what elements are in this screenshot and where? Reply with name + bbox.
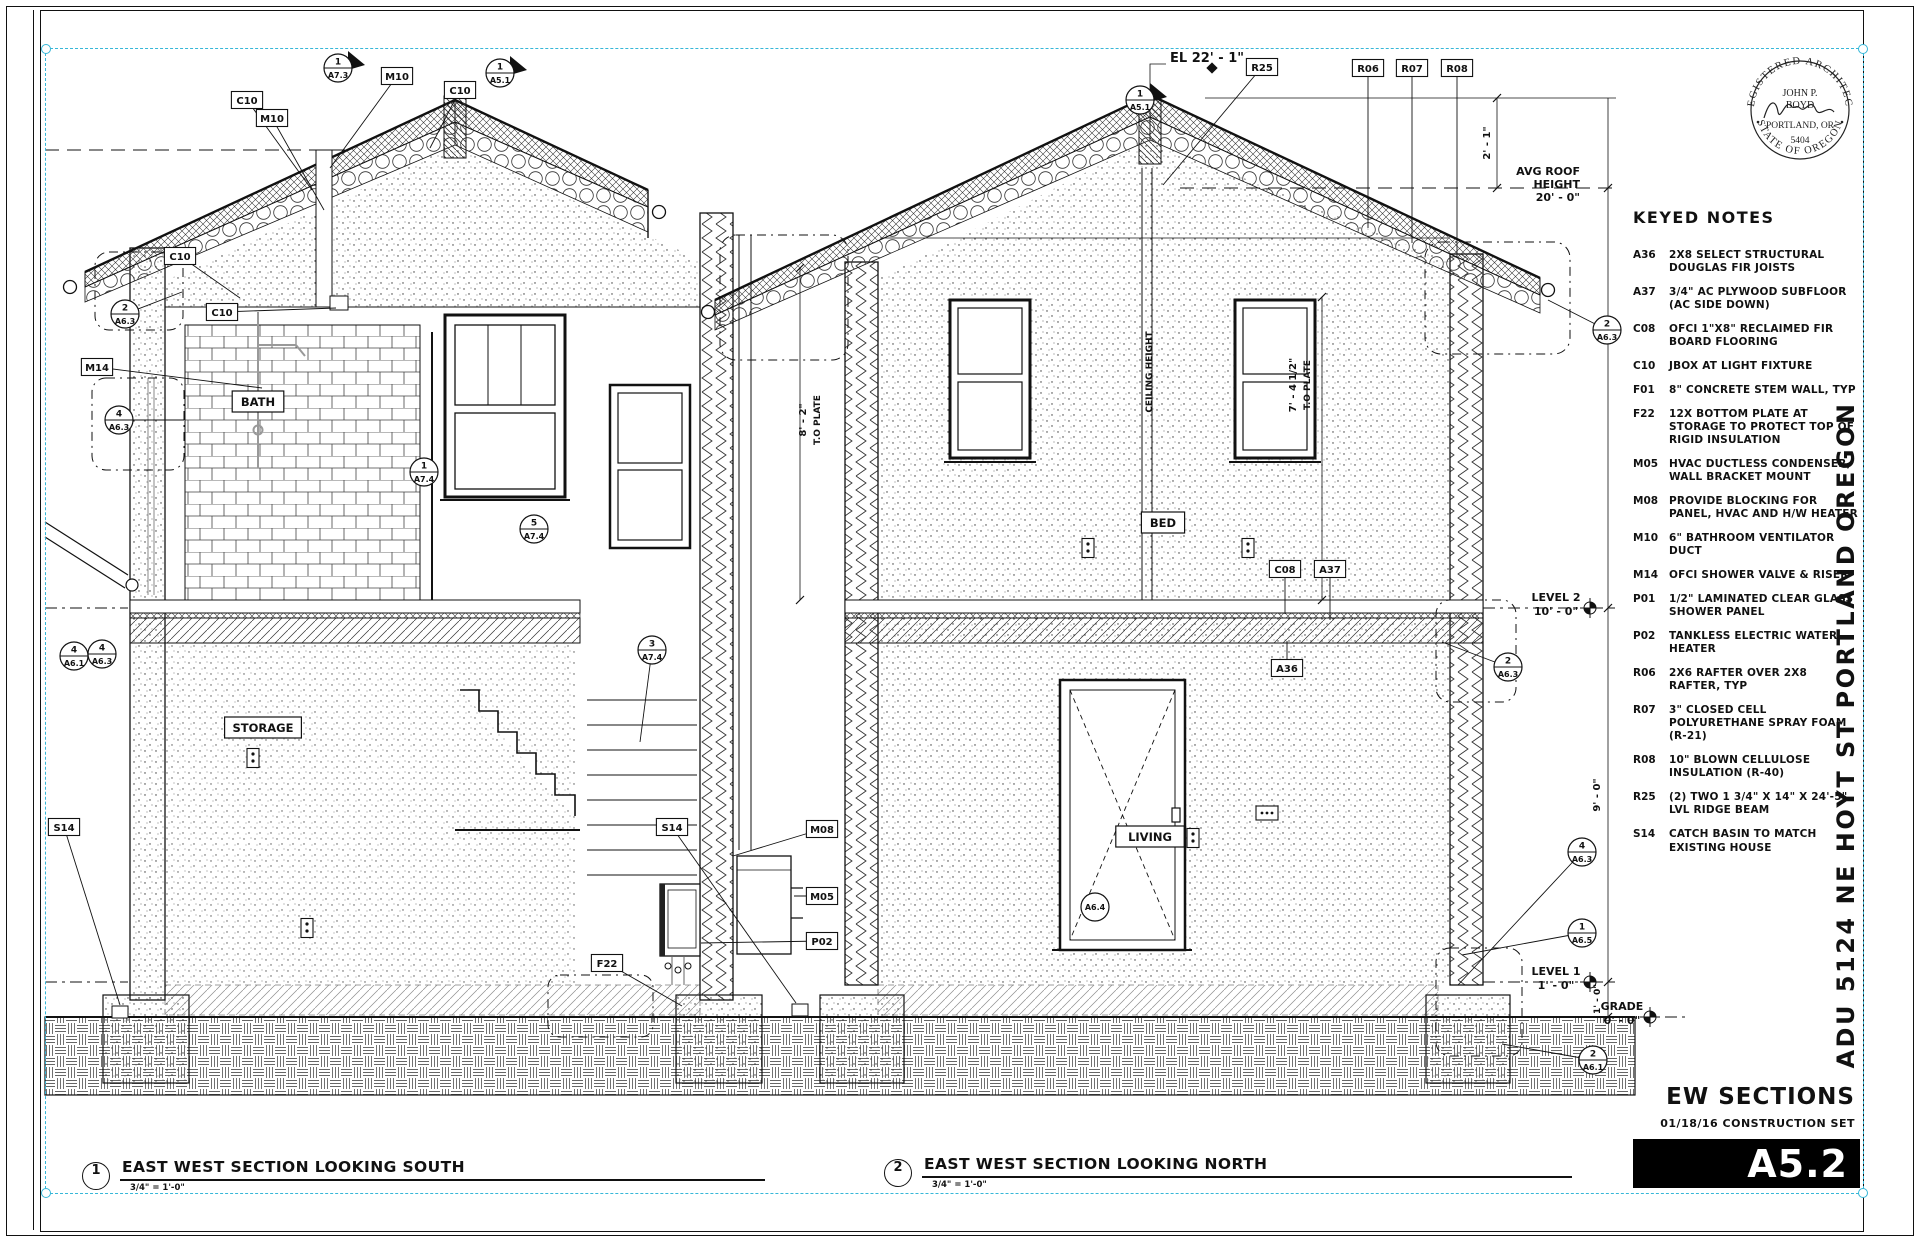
outlet-symbol (1187, 829, 1199, 848)
section-1-rule (120, 1179, 765, 1181)
keyed-note-a37: A373/4" AC PLYWOOD SUBFLOOR (AC SIDE DOW… (1633, 286, 1861, 312)
svg-text:1: 1 (1137, 90, 1143, 100)
architect-stamp: REGISTERED ARCHITECT STATE OF OREGON JOH… (1736, 46, 1864, 174)
keyed-note-code: R07 (1633, 704, 1669, 743)
switch-symbol (1256, 806, 1278, 820)
keyed-note-code: R25 (1633, 791, 1669, 817)
selection-handle-top-right[interactable] (1858, 44, 1868, 54)
section-1-title-block: 1 EAST WEST SECTION LOOKING SOUTH 3/4" =… (82, 1158, 802, 1198)
keyed-note-code: M05 (1633, 458, 1669, 484)
keyed-note-text: JBOX AT LIGHT FIXTURE (1669, 360, 1861, 373)
keyed-notes-list: A362X8 SELECT STRUCTURAL DOUGLAS FIR JOI… (1633, 249, 1861, 855)
svg-text:R06: R06 (1357, 64, 1379, 75)
outlet-symbol (1082, 539, 1094, 558)
keyed-note-r08: R0810" BLOWN CELLULOSE INSULATION (R-40) (1633, 754, 1861, 780)
detail-marker-a6.3-4: 4A6.3 (88, 640, 116, 668)
svg-text:C08: C08 (1274, 565, 1295, 576)
gutter-left (702, 306, 715, 319)
storage-wall-fill (165, 645, 575, 985)
detail-marker-a6.1-4: 4A6.1 (60, 642, 88, 670)
annotation-vertical-text: 9' - 0" (1592, 778, 1603, 811)
keyed-note-m10: M106" BATHROOM VENTILATOR DUCT (1633, 532, 1861, 558)
annotation-vertical-text: 7' - 4 1/2" (1288, 358, 1299, 412)
keyed-note-code: S14 (1633, 828, 1669, 854)
svg-text:C10: C10 (169, 252, 190, 263)
svg-text:A7.4: A7.4 (414, 475, 435, 484)
keyed-note-code: A36 (1633, 249, 1669, 275)
svg-text:A6.3: A6.3 (1498, 670, 1518, 679)
keyed-note-code: M10 (1633, 532, 1669, 558)
sheet-number: A5.2 (1747, 1142, 1860, 1186)
section-2-rule (922, 1176, 1572, 1178)
svg-text:A36: A36 (1276, 664, 1298, 675)
section-2-title-block: 2 EAST WEST SECTION LOOKING NORTH 3/4" =… (884, 1155, 1584, 1195)
drawing-sheet: { "sheet": { "number": "A5.2", "title": … (0, 0, 1920, 1242)
window-1 (440, 315, 570, 500)
svg-text:STORAGE: STORAGE (233, 721, 294, 735)
hvac-condenser (737, 856, 803, 954)
svg-text:A6.3: A6.3 (109, 423, 129, 432)
stamp-city: PORTLAND, OR (1766, 121, 1835, 131)
keyed-notes-title: KEYED NOTES (1633, 208, 1861, 227)
keyed-note-code: P02 (1633, 630, 1669, 656)
construction-set-label: 01/18/16 CONSTRUCTION SET (1633, 1117, 1855, 1130)
svg-text:M10: M10 (385, 72, 409, 83)
svg-text:M10: M10 (260, 114, 284, 125)
keyed-note-s14: S14CATCH BASIN TO MATCH EXISTING HOUSE (1633, 828, 1861, 854)
detail-marker-a6.4: A6.4 (1081, 893, 1109, 921)
keyed-note-code: F22 (1633, 408, 1669, 447)
section-1-title: EAST WEST SECTION LOOKING SOUTH (122, 1158, 465, 1176)
keyed-note-text: 8" CONCRETE STEM WALL, TYP (1669, 384, 1861, 397)
keyed-note-m14: M14OFCI SHOWER VALVE & RISER (1633, 569, 1861, 582)
room-label-storage: STORAGE (225, 717, 302, 738)
keynote-tag-s14: S14 (48, 819, 120, 1006)
right-wall-insulated (700, 213, 733, 1000)
project-address-vertical: ADU 5124 NE HOYT ST PORTLAND OREGON (1832, 401, 1860, 1068)
section-1-scale: 3/4" = 1'-0" (130, 1183, 185, 1193)
svg-text:R25: R25 (1251, 63, 1273, 74)
floor-assembly-1 (130, 600, 580, 643)
detail-marker-a5.1-1: 1A5.1 (486, 56, 527, 87)
svg-text:A7.4: A7.4 (524, 532, 545, 541)
keyed-note-code: M14 (1633, 569, 1669, 582)
outlet-symbol (247, 749, 259, 768)
keyed-note-code: C10 (1633, 360, 1669, 373)
svg-text:M05: M05 (810, 892, 834, 903)
svg-text:4: 4 (116, 410, 122, 420)
selection-handle-bottom-right[interactable] (1858, 1188, 1868, 1198)
keyed-note-code: F01 (1633, 384, 1669, 397)
gutter-right (653, 206, 666, 219)
annotation-text: HEIGHT (1533, 178, 1580, 191)
room-label-bed: BED (1141, 512, 1184, 533)
keyed-note-code: R08 (1633, 754, 1669, 780)
keyed-note-m05: M05HVAC DUCTLESS CONDENSER, WALL BRACKET… (1633, 458, 1861, 484)
annotation-text: 20' - 0" (1536, 191, 1580, 204)
keyed-note-code: M08 (1633, 495, 1669, 521)
keyed-note-r07: R073" CLOSED CELL POLYURETHANE SPRAY FOA… (1633, 704, 1861, 743)
living-door (1052, 680, 1192, 950)
svg-text:R08: R08 (1446, 64, 1468, 75)
annotation-text: LEVEL 2 (1531, 591, 1580, 604)
svg-text:S14: S14 (53, 823, 74, 834)
svg-text:C10: C10 (449, 86, 470, 97)
svg-text:A6.3: A6.3 (92, 657, 112, 666)
catch-basin (792, 1004, 808, 1016)
keyed-note-a36: A362X8 SELECT STRUCTURAL DOUGLAS FIR JOI… (1633, 249, 1861, 275)
svg-text:1: 1 (421, 462, 427, 472)
svg-text:1: 1 (335, 58, 341, 68)
keyed-note-c08: C08OFCI 1"X8" RECLAIMED FIR BOARD FLOORI… (1633, 323, 1861, 349)
keyed-note-code: A37 (1633, 286, 1669, 312)
building-2-section (702, 95, 1555, 985)
annotation-vertical-text: T.O PLATE (1303, 360, 1313, 410)
keyed-note-text: OFCI 1"X8" RECLAIMED FIR BOARD FLOORING (1669, 323, 1861, 349)
svg-text:A5.1: A5.1 (1130, 103, 1151, 112)
svg-text:4: 4 (99, 644, 105, 654)
keyed-note-f01: F018" CONCRETE STEM WALL, TYP (1633, 384, 1861, 397)
keyed-note-p01: P011/2" LAMINATED CLEAR GLASS SHOWER PAN… (1633, 593, 1861, 619)
svg-text:M14: M14 (85, 363, 109, 374)
room-label-living: LIVING (1116, 826, 1184, 847)
ridge-beam (444, 96, 466, 158)
svg-text:A7.3: A7.3 (328, 71, 348, 80)
svg-text:S14: S14 (661, 823, 682, 834)
svg-text:2: 2 (1590, 1050, 1596, 1060)
keyed-note-code: R06 (1633, 667, 1669, 693)
outlet-symbol (1242, 539, 1254, 558)
keynote-tag-m08: M08 (733, 821, 838, 857)
svg-text:C10: C10 (236, 96, 257, 107)
detail-marker-a6.3-2: 2A6.3 (1548, 300, 1621, 344)
adjacent-eave (45, 522, 138, 591)
keyed-note-text: 2X8 SELECT STRUCTURAL DOUGLAS FIR JOISTS (1669, 249, 1861, 275)
svg-text:2: 2 (1604, 320, 1610, 330)
svg-text:A6.3: A6.3 (115, 317, 135, 326)
keyed-note-m08: M08PROVIDE BLOCKING FOR PANEL, HVAC AND … (1633, 495, 1861, 521)
tankless-water-heater (660, 884, 700, 985)
keyed-note-r06: R062X6 RAFTER OVER 2X8 RAFTER, TYP (1633, 667, 1861, 693)
annotation-vertical-text: T.O PLATE (813, 395, 823, 445)
svg-text:M08: M08 (810, 825, 834, 836)
detail-marker-a7.4-1: 1A7.4 (410, 458, 438, 486)
section-2-scale: 3/4" = 1'-0" (932, 1180, 987, 1190)
detail-marker-a7.4-5: 5A7.4 (520, 515, 548, 543)
sheet-number-band: A5.2 (1633, 1139, 1860, 1188)
floor-assembly-2 (845, 600, 1483, 643)
bath-tile-wall (185, 325, 420, 603)
keynote-tag-r08: R08 (1441, 60, 1472, 259)
annotation-vertical-text: CEILING HEIGHT (1145, 330, 1155, 412)
svg-text:F22: F22 (597, 959, 618, 970)
keyed-note-c10: C10JBOX AT LIGHT FIXTURE (1633, 360, 1861, 373)
annotation-text: EL 22' - 1" (1170, 51, 1244, 66)
keyed-note-text: 3/4" AC PLYWOOD SUBFLOOR (AC SIDE DOWN) (1669, 286, 1861, 312)
svg-text:4: 4 (1579, 842, 1585, 852)
svg-text:C10: C10 (211, 308, 232, 319)
svg-text:A6.3: A6.3 (1597, 333, 1617, 342)
gutter-right (1542, 284, 1555, 297)
annotation-vertical-text: 2' - 1" (1482, 126, 1493, 159)
keyed-note-p02: P02TANKLESS ELECTRIC WATER HEATER (1633, 630, 1861, 656)
svg-text:A6.1: A6.1 (64, 659, 85, 668)
section-1-number-bubble: 1 (82, 1162, 110, 1190)
svg-text:BATH: BATH (241, 395, 275, 409)
svg-text:1: 1 (1579, 923, 1585, 933)
outlet-symbol (301, 919, 313, 938)
svg-text:5: 5 (531, 519, 537, 529)
svg-text:R07: R07 (1401, 64, 1423, 75)
detail-marker-a7.4-3: 3A7.4 (638, 636, 666, 742)
window-2 (610, 385, 690, 548)
bath-vent-duct (316, 150, 332, 307)
keyed-note-r25: R25(2) TWO 1 3/4" X 14" X 24'-5" LVL RID… (1633, 791, 1861, 817)
section-2-title: EAST WEST SECTION LOOKING NORTH (924, 1155, 1267, 1173)
annotation-text: 10' - 0" (1534, 605, 1578, 618)
annotation-text: LEVEL 1 (1531, 965, 1580, 978)
building-1-section (45, 96, 808, 1018)
keyed-note-code: P01 (1633, 593, 1669, 619)
svg-text:P02: P02 (811, 937, 832, 948)
sections-drawing: C10M10M10C10C10C10M14R25R06R07R08C08A37A… (0, 0, 1920, 1242)
sheet-title: EW SECTIONS (1633, 1084, 1855, 1110)
stamp-license: 5404 (1791, 136, 1810, 146)
keyed-notes-panel: KEYED NOTES A362X8 SELECT STRUCTURAL DOU… (1633, 208, 1861, 866)
svg-text:4: 4 (71, 646, 77, 656)
keyed-note-code: C08 (1633, 323, 1669, 349)
keynote-tag-m05: M05 (794, 888, 838, 905)
svg-text:A7.4: A7.4 (642, 653, 663, 662)
svg-text:A6.5: A6.5 (1572, 936, 1593, 945)
selection-handle-bottom-left[interactable] (41, 1188, 51, 1198)
annotation-vertical-text: 8' - 2" (798, 403, 809, 436)
svg-text:LIVING: LIVING (1128, 830, 1172, 844)
svg-text:2: 2 (1505, 657, 1511, 667)
svg-text:3: 3 (649, 640, 655, 650)
room-label-bath: BATH (232, 391, 284, 412)
svg-text:A6.1: A6.1 (1583, 1063, 1604, 1072)
gutter-left (64, 281, 77, 294)
svg-text:A5.1: A5.1 (490, 76, 511, 85)
bed-window-left (944, 300, 1036, 462)
svg-text:BED: BED (1150, 516, 1176, 530)
catch-basin (112, 1006, 128, 1018)
svg-text:A37: A37 (1319, 565, 1341, 576)
svg-text:1: 1 (497, 63, 503, 73)
downspout (739, 235, 751, 850)
selection-handle-top-left[interactable] (41, 44, 51, 54)
annotation-vertical-text: 1' - 0" (1593, 984, 1603, 1014)
annotation-text: AVG ROOF (1516, 165, 1580, 178)
annotation-text: 0' - 0" (1604, 1014, 1641, 1027)
svg-text:A6.3: A6.3 (1572, 855, 1592, 864)
detail-marker-a7.3-1: 1A7.3 (324, 51, 365, 82)
svg-text:2: 2 (122, 304, 128, 314)
annotation-text: 1' - 0" (1538, 979, 1575, 992)
section-2-number-bubble: 2 (884, 1159, 912, 1187)
svg-text:A6.4: A6.4 (1085, 903, 1106, 912)
keyed-note-f22: F2212X BOTTOM PLATE AT STORAGE TO PROTEC… (1633, 408, 1861, 447)
annotation-text: GRADE (1601, 1000, 1644, 1013)
stamp-name-1: JOHN P. (1782, 88, 1817, 99)
